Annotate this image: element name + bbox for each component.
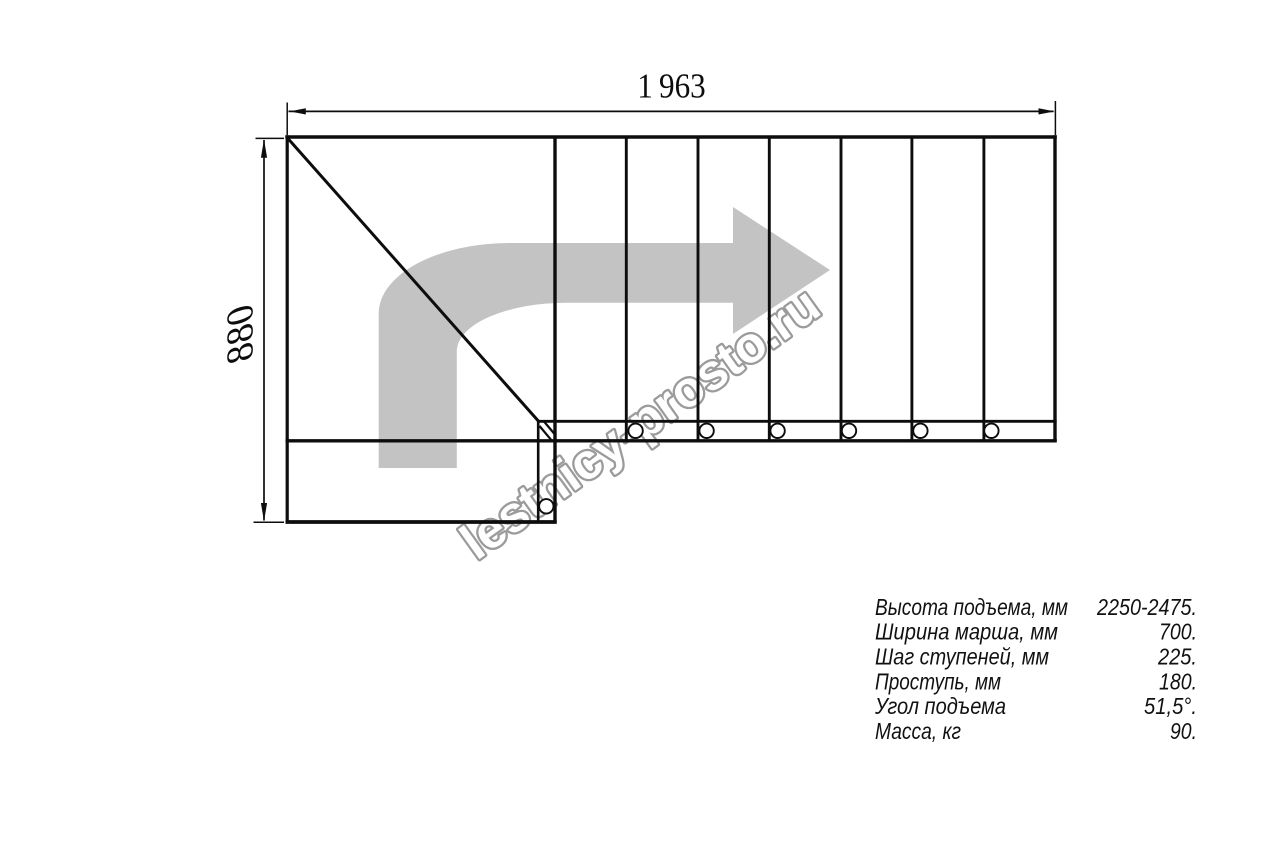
svg-text:90.: 90. — [1170, 718, 1197, 744]
svg-text:225.: 225. — [1157, 644, 1197, 670]
svg-text:Проступь, мм: Проступь, мм — [875, 668, 1001, 694]
svg-text:51,5°.: 51,5°. — [1144, 693, 1197, 719]
svg-text:Высота подъема, мм: Высота подъема, мм — [875, 594, 1068, 620]
svg-text:Шаг ступеней, мм: Шаг ступеней, мм — [875, 644, 1049, 670]
svg-text:1 963: 1 963 — [637, 67, 706, 106]
svg-text:Угол подъема: Угол подъема — [874, 693, 1006, 719]
svg-text:Ширина марша, мм: Ширина марша, мм — [875, 619, 1058, 645]
svg-text:2250-2475.: 2250-2475. — [1096, 594, 1197, 620]
svg-text:Масса, кг: Масса, кг — [875, 718, 961, 744]
svg-text:700.: 700. — [1159, 619, 1197, 645]
svg-text:180.: 180. — [1159, 668, 1197, 694]
